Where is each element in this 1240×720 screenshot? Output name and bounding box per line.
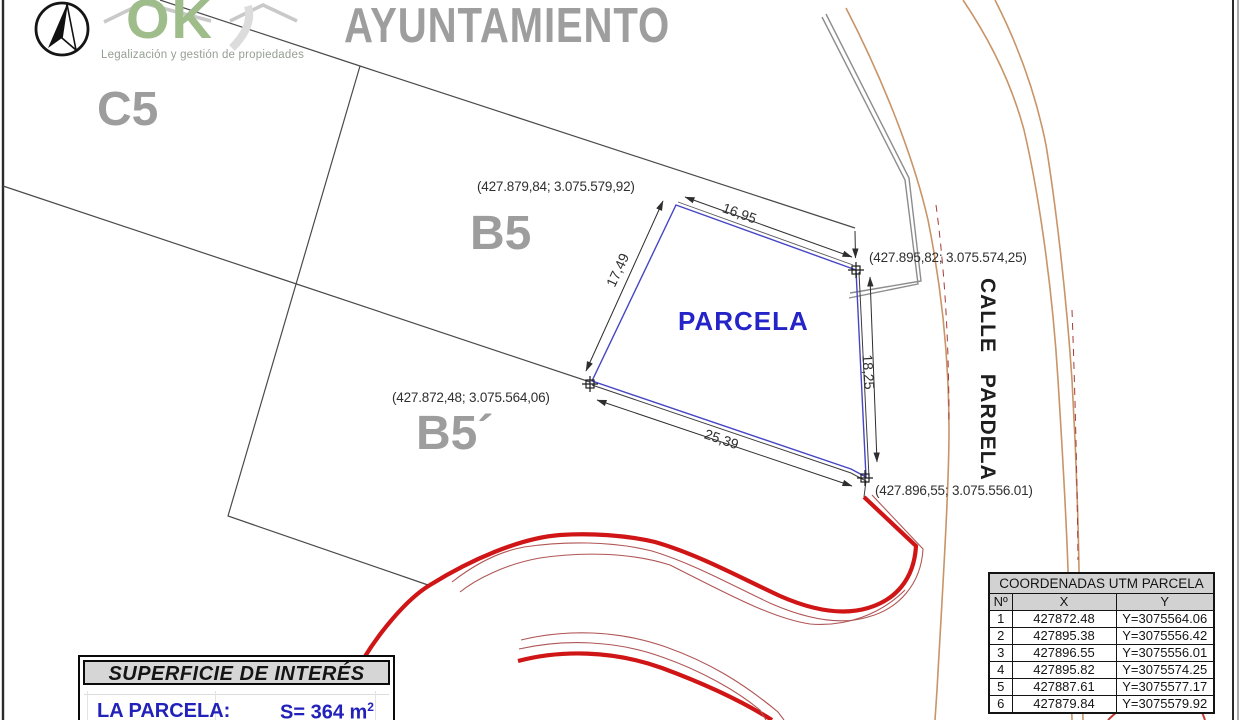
surface-item-label: LA PARCELA: <box>97 700 230 720</box>
surface-box-gridline <box>87 691 88 720</box>
cell-y: Y=3075564.06 <box>1116 611 1214 628</box>
surface-of-interest-box: SUPERFICIE DE INTERÉS LA PARCELA: S= 364… <box>78 655 395 720</box>
utm-col-x: X <box>1012 594 1116 611</box>
dimension-label-right: 18,25 <box>859 354 877 390</box>
surface-value-text: S= 364 m <box>280 702 367 720</box>
cell-x: 427887.61 <box>1012 679 1116 696</box>
cell-x: 427895.82 <box>1012 662 1116 679</box>
utm-table-title: COORDENADAS UTM PARCELA <box>989 573 1214 594</box>
zone-label-b5: B5 <box>470 210 531 258</box>
cell-n: 3 <box>989 645 1012 662</box>
logo-brand: OK <box>126 0 214 47</box>
plan-title: AYUNTAMIENTO <box>344 2 670 51</box>
vertex-marker-bottom-left <box>582 376 598 392</box>
surface-box-title: SUPERFICIE DE INTERÉS <box>83 660 390 685</box>
road-curb-thick-lower <box>518 653 772 720</box>
road-edge-thin-upper-1 <box>452 495 923 621</box>
street-name-label: CALLE PARDELA <box>972 278 1002 478</box>
zone-label-b5-prime: B5´ <box>416 410 493 458</box>
table-row: 6 427879.84 Y=3075579.92 <box>989 696 1214 714</box>
cell-y: Y=3075577.17 <box>1116 679 1214 696</box>
surface-box-gridline <box>375 691 376 720</box>
cell-n: 5 <box>989 679 1012 696</box>
zone-label-c5: C5 <box>97 86 158 134</box>
table-row: 1 427872.48 Y=3075564.06 <box>989 611 1214 628</box>
surface-box-gridline <box>84 694 389 695</box>
cell-n: 1 <box>989 611 1012 628</box>
road-curb-thick-upper <box>364 497 916 658</box>
table-row: 3 427896.55 Y=3075556.01 <box>989 645 1214 662</box>
utm-col-n: Nº <box>989 594 1012 611</box>
cell-y: Y=3075556.42 <box>1116 628 1214 645</box>
cell-y: Y=3075574.25 <box>1116 662 1214 679</box>
dimension-line-left <box>586 201 663 371</box>
corner-coordinate-bottom-left: (427.872,48; 3.075.564,06) <box>392 390 550 405</box>
utm-table-header-row: Nº X Y <box>989 594 1214 611</box>
cell-n: 2 <box>989 628 1012 645</box>
surface-item-value: S= 364 m2 <box>280 700 374 720</box>
table-row: 4 427895.82 Y=3075574.25 <box>989 662 1214 679</box>
logo-tagline: Legalización y gestión de propiedades <box>101 49 304 61</box>
cell-x: 427896.55 <box>1012 645 1116 662</box>
cell-n: 4 <box>989 662 1012 679</box>
table-row: 5 427887.61 Y=3075577.17 <box>989 679 1214 696</box>
cell-y: Y=3075556.01 <box>1116 645 1214 662</box>
parcel-label: PARCELA <box>678 305 809 339</box>
parcel-edge-companion-top <box>678 202 853 265</box>
cell-n: 6 <box>989 696 1012 714</box>
table-row: 2 427895.38 Y=3075556.42 <box>989 628 1214 645</box>
cell-x: 427879.84 <box>1012 696 1116 714</box>
vertex-leader-arrow <box>855 231 856 258</box>
vertex-marker-bottom-right <box>857 470 873 486</box>
boundary-line-c5-b5 <box>228 66 428 585</box>
surface-value-superscript: 2 <box>367 700 374 714</box>
dimension-line-top <box>685 197 852 257</box>
north-compass-icon <box>36 3 88 55</box>
utm-coordinates-table: COORDENADAS UTM PARCELA Nº X Y 1 427872.… <box>988 572 1215 714</box>
utm-col-y: Y <box>1116 594 1214 611</box>
corner-coordinate-top-left: (427.879,84; 3.075.579,92) <box>477 179 635 194</box>
road-edge-thin-upper-2 <box>460 554 905 624</box>
corner-coordinate-bottom-right: (427.896,55; 3.075.556.01) <box>875 483 1033 498</box>
utm-table-title-row: COORDENADAS UTM PARCELA <box>989 573 1214 594</box>
road-edge-thin-lower-1 <box>521 633 784 720</box>
cell-y: Y=3075579.92 <box>1116 696 1214 714</box>
cell-x: 427895.38 <box>1012 628 1116 645</box>
corner-coordinate-top-right: (427.895,82; 3.075.574,25) <box>869 250 1027 265</box>
cell-x: 427872.48 <box>1012 611 1116 628</box>
site-plan-sheet: OK Legalización y gestión de propiedades… <box>0 0 1240 720</box>
